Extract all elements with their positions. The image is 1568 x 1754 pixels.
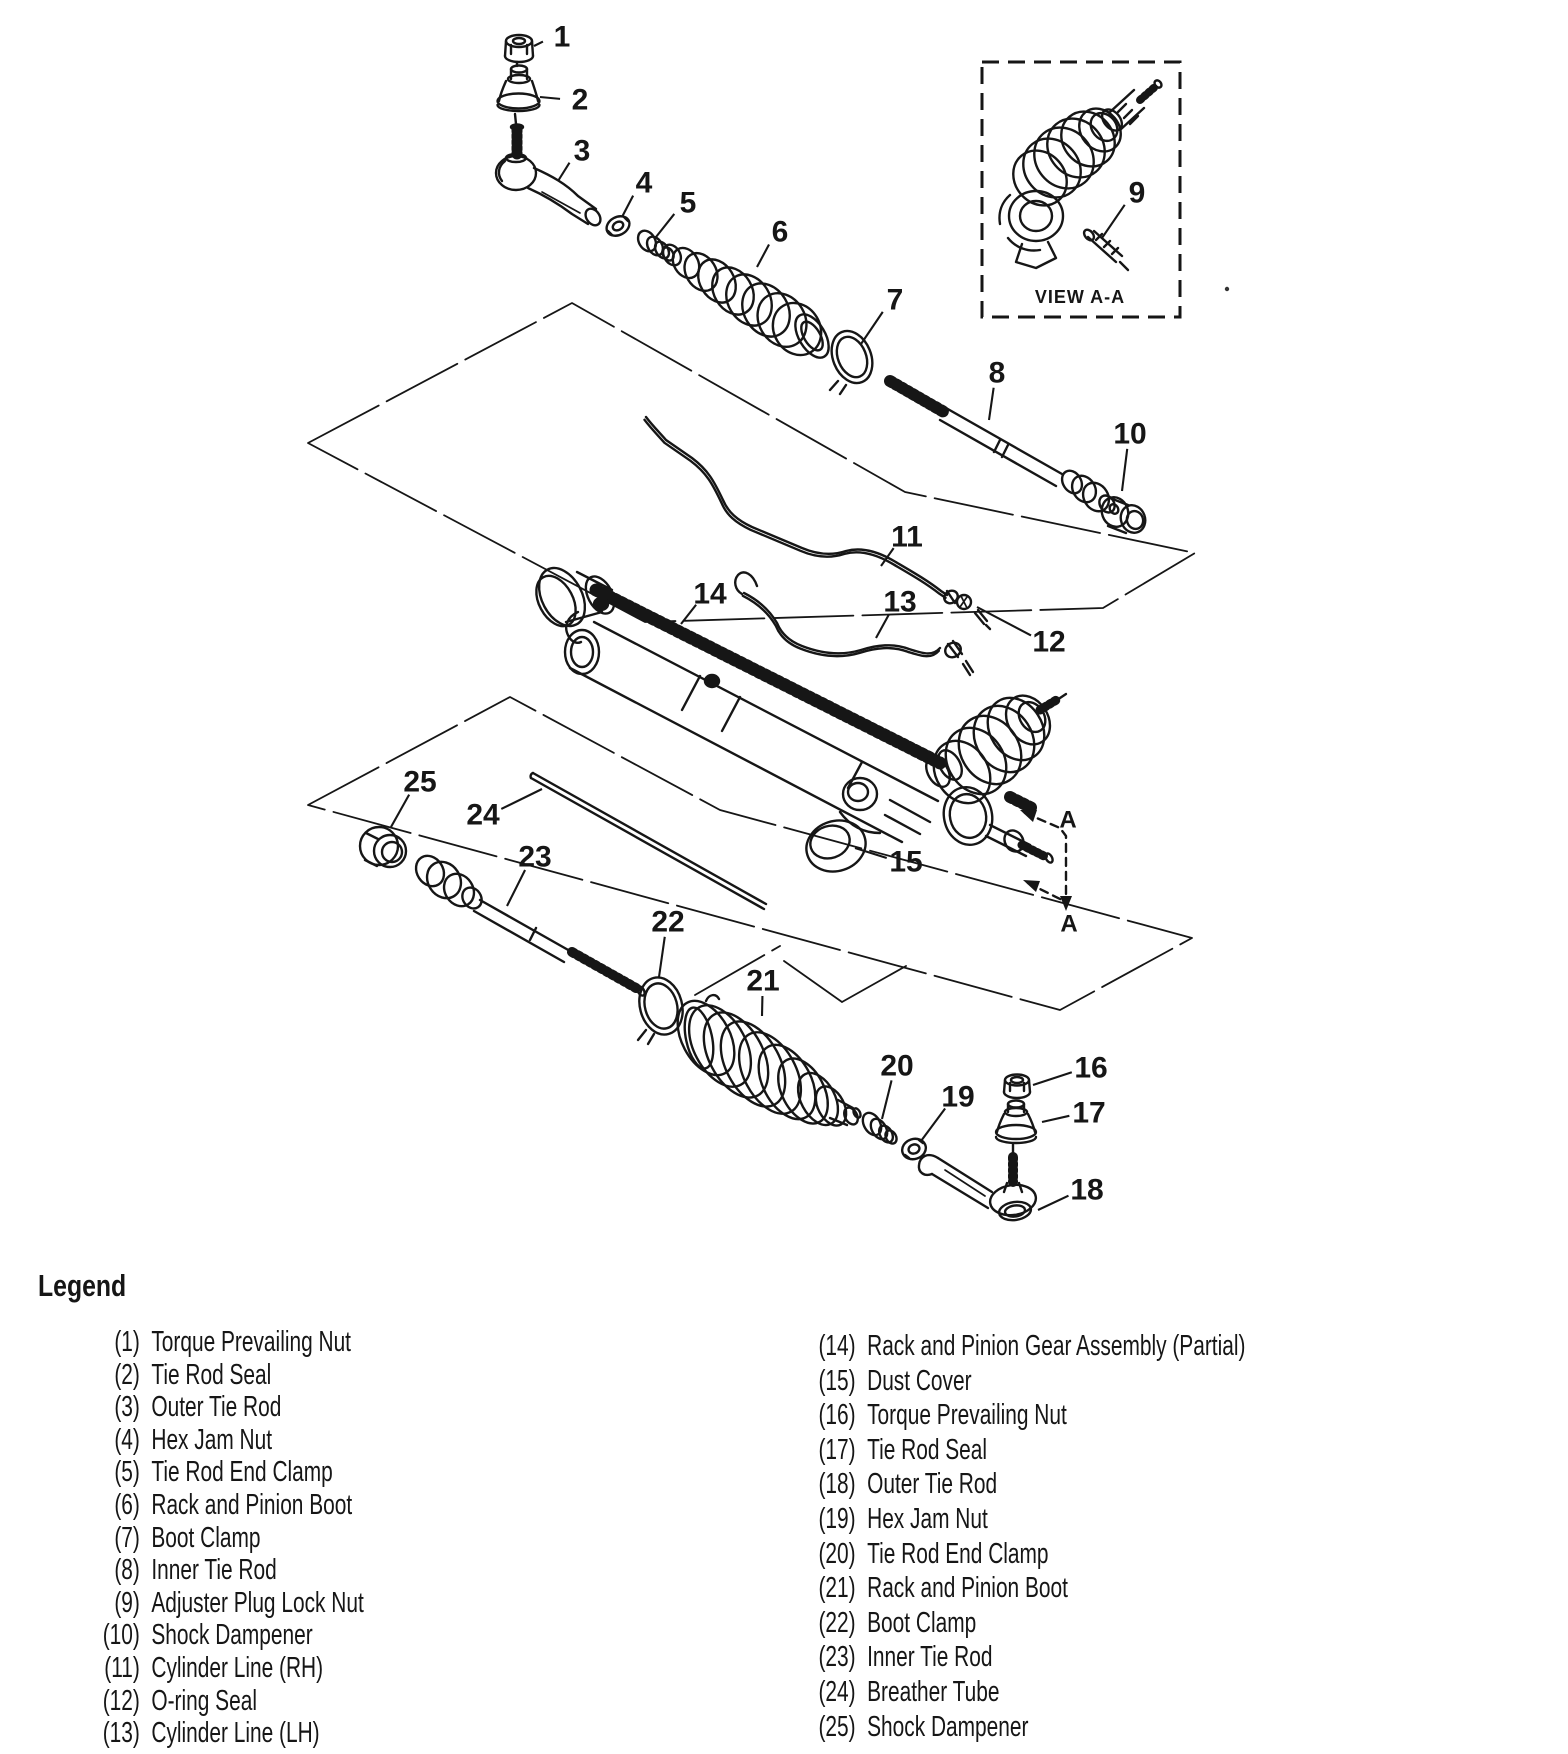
legend-item-number: (18) [798, 1468, 856, 1501]
callout-label-17: 17 [1072, 1097, 1105, 1130]
callout-leader-9 [1102, 205, 1125, 238]
exploded-parts-diagram: VIEW A-A [0, 0, 1568, 1250]
callout-1: 1 [534, 21, 570, 54]
callout-label-11: 11 [891, 521, 923, 554]
legend-item-number: (1) [70, 1326, 140, 1359]
callout-5: 5 [656, 187, 696, 238]
legend-item-label: Tie Rod Seal [151, 1359, 271, 1392]
legend-item: (5)Tie Rod End Clamp [70, 1456, 364, 1489]
legend-item: (6)Rack and Pinion Boot [70, 1489, 364, 1522]
construction-plane-lower [308, 697, 1192, 1010]
callout-label-1: 1 [554, 21, 571, 54]
callout-25: 25 [391, 766, 437, 828]
callout-label-21: 21 [746, 965, 779, 998]
callout-24: 24 [466, 789, 542, 832]
callout-11: 11 [881, 521, 923, 567]
part-4-hex-jam-nut [603, 212, 633, 239]
callout-leader-17 [1042, 1116, 1069, 1122]
legend-item-label: Rack and Pinion Boot [867, 1572, 1068, 1605]
callout-label-4: 4 [636, 167, 653, 200]
callout-label-14: 14 [693, 578, 727, 611]
legend-item-number: (24) [798, 1676, 856, 1709]
legend-item-number: (10) [70, 1619, 140, 1652]
part-10-shock-dampener [1098, 493, 1149, 536]
callout-leader-1 [534, 42, 543, 46]
part-25-shock-dampener [360, 827, 406, 867]
legend-item-label: Outer Tie Rod [867, 1468, 997, 1501]
legend-item: (13)Cylinder Line (LH) [70, 1717, 364, 1750]
callout-leader-7 [861, 312, 883, 344]
callout-14: 14 [681, 578, 727, 625]
legend-item-number: (23) [798, 1641, 856, 1674]
callout-leader-20 [882, 1080, 892, 1119]
callout-leader-10 [1122, 449, 1127, 491]
legend-item: (22)Boot Clamp [798, 1607, 1245, 1642]
legend-item: (20)Tie Rod End Clamp [798, 1538, 1245, 1573]
legend-item: (2)Tie Rod Seal [70, 1359, 364, 1392]
callout-leader-8 [989, 388, 994, 420]
callout-13: 13 [876, 586, 917, 639]
scan-speck [1225, 287, 1229, 291]
legend-item-number: (15) [798, 1365, 856, 1398]
legend-item: (3)Outer Tie Rod [70, 1391, 364, 1424]
legend-item: (12)O-ring Seal [70, 1685, 364, 1718]
legend-item-label: Breather Tube [867, 1676, 999, 1709]
legend-item-label: Hex Jam Nut [151, 1424, 272, 1457]
legend-item: (10)Shock Dampener [70, 1619, 364, 1652]
legend-item: (11)Cylinder Line (RH) [70, 1652, 364, 1685]
callout-label-24: 24 [466, 799, 500, 832]
legend-item-number: (7) [70, 1522, 140, 1555]
part-19-hex-jam-nut [899, 1136, 928, 1162]
legend-item: (18)Outer Tie Rod [798, 1468, 1245, 1503]
legend-item-label: Tie Rod End Clamp [151, 1456, 332, 1489]
legend-column-right: (14)Rack and Pinion Gear Assembly (Parti… [798, 1330, 1245, 1745]
callout-16: 16 [1033, 1052, 1108, 1086]
part-14-rack-and-pinion-gear-assembly [528, 560, 1066, 864]
callout-label-12: 12 [1032, 626, 1065, 659]
legend-item-number: (6) [70, 1489, 140, 1522]
legend-item: (19)Hex Jam Nut [798, 1503, 1245, 1538]
callout-leader-24 [501, 789, 542, 809]
callout-leader-16 [1033, 1072, 1072, 1085]
legend-item-label: Shock Dampener [151, 1619, 312, 1652]
legend-item-number: (20) [798, 1538, 856, 1571]
adjuster-plug-drawing [999, 79, 1162, 268]
legend-item-label: Rack and Pinion Gear Assembly (Partial) [867, 1330, 1245, 1363]
legend-item-number: (4) [70, 1424, 140, 1457]
legend-item: (15)Dust Cover [798, 1365, 1245, 1400]
legend-item-label: Inner Tie Rod [151, 1554, 276, 1587]
legend-item: (1)Torque Prevailing Nut [70, 1326, 364, 1359]
legend-item: (24)Breather Tube [798, 1676, 1245, 1711]
legend-item-number: (21) [798, 1572, 856, 1605]
view-a-a-border [982, 62, 1180, 317]
callout-label-16: 16 [1074, 1052, 1107, 1085]
part-18-outer-tie-rod [919, 1144, 1038, 1222]
callout-label-23: 23 [518, 841, 551, 874]
part-17-tie-rod-seal [996, 1101, 1036, 1144]
legend-item-label: Tie Rod End Clamp [867, 1538, 1048, 1571]
part-1-torque-prevailing-nut [505, 35, 533, 66]
legend-item-number: (19) [798, 1503, 856, 1536]
legend-item-number: (12) [70, 1685, 140, 1718]
part-16-torque-prevailing-nut [1004, 1075, 1030, 1099]
part-20-tie-rod-end-clamp [859, 1110, 899, 1146]
legend-item-label: Cylinder Line (RH) [151, 1652, 323, 1685]
callout-9: 9 [1102, 177, 1145, 239]
callout-label-5: 5 [680, 187, 697, 220]
callout-label-9: 9 [1129, 177, 1146, 210]
view-a-a-inset: VIEW A-A [982, 62, 1180, 317]
section-a-a-arrows: A A [1020, 807, 1078, 938]
part-6-rack-and-pinion-boot [659, 241, 835, 364]
callout-label-15: 15 [889, 846, 922, 879]
legend-item-number: (14) [798, 1330, 856, 1363]
legend-column-left: (1)Torque Prevailing Nut(2)Tie Rod Seal(… [70, 1326, 364, 1750]
callout-2: 2 [540, 84, 588, 117]
legend-item-number: (16) [798, 1399, 856, 1432]
legend-item: (14)Rack and Pinion Gear Assembly (Parti… [798, 1330, 1245, 1365]
arrowhead-upper [1020, 810, 1037, 822]
arrowhead-lower [1023, 880, 1040, 892]
callout-label-7: 7 [887, 284, 904, 317]
legend-item-number: (13) [70, 1717, 140, 1750]
legend-item-label: Torque Prevailing Nut [867, 1399, 1067, 1432]
legend-item-number: (5) [70, 1456, 140, 1489]
callout-leader-4 [622, 196, 633, 217]
legend-item-label: Tie Rod Seal [867, 1434, 987, 1467]
callout-20: 20 [880, 1050, 913, 1120]
legend-item-label: Cylinder Line (LH) [151, 1717, 319, 1750]
construction-plane-upper [308, 303, 1195, 622]
callout-leader-2 [540, 97, 560, 99]
callout-15: 15 [855, 846, 923, 879]
callout-8: 8 [989, 357, 1006, 421]
legend-item-number: (11) [70, 1652, 140, 1685]
legend-item-label: Adjuster Plug Lock Nut [151, 1587, 363, 1620]
part-24-breather-tube [531, 773, 766, 909]
callout-23: 23 [507, 841, 552, 907]
callout-4: 4 [622, 167, 653, 218]
legend-item: (16)Torque Prevailing Nut [798, 1399, 1245, 1434]
callout-leader-5 [656, 214, 674, 237]
legend-item-label: Hex Jam Nut [867, 1503, 988, 1536]
callout-leader-6 [757, 245, 769, 267]
legend-item-label: Dust Cover [867, 1365, 971, 1398]
legend-item-label: Shock Dampener [867, 1711, 1028, 1744]
legend-item: (4)Hex Jam Nut [70, 1424, 364, 1457]
callout-leader-22 [659, 937, 665, 977]
callout-label-20: 20 [880, 1050, 913, 1083]
callout-17: 17 [1042, 1097, 1106, 1130]
legend-item-label: Inner Tie Rod [867, 1641, 992, 1674]
legend-item-number: (3) [70, 1391, 140, 1424]
callout-label-6: 6 [772, 216, 789, 249]
section-label-a-top: A [1059, 807, 1076, 834]
legend-item: (7)Boot Clamp [70, 1522, 364, 1555]
callout-leader-18 [1038, 1196, 1068, 1210]
callout-6: 6 [757, 216, 788, 268]
callout-leader-23 [507, 870, 525, 906]
callout-leader-25 [391, 795, 409, 827]
legend-item: (25)Shock Dampener [798, 1711, 1245, 1746]
legend-item: (21)Rack and Pinion Boot [798, 1572, 1245, 1607]
callout-label-3: 3 [574, 135, 591, 168]
legend-item: (17)Tie Rod Seal [798, 1434, 1245, 1469]
part-2-tie-rod-seal [498, 66, 540, 125]
callout-10: 10 [1113, 418, 1146, 492]
view-a-a-label: VIEW A-A [1035, 287, 1125, 307]
legend-item-number: (22) [798, 1607, 856, 1640]
legend-item-label: Boot Clamp [867, 1607, 976, 1640]
steering-gear-parts-page: VIEW A-A [0, 0, 1568, 1754]
legend-title: Legend [38, 1268, 126, 1304]
callout-label-18: 18 [1070, 1174, 1103, 1207]
callout-18: 18 [1038, 1174, 1104, 1211]
legend-item-number: (2) [70, 1359, 140, 1392]
part-11-cylinder-line-rh [645, 417, 961, 606]
legend-item-number: (17) [798, 1434, 856, 1467]
callout-12: 12 [977, 607, 1066, 659]
callout-leader-3 [558, 163, 570, 181]
legend-item-label: Rack and Pinion Boot [151, 1489, 352, 1522]
callout-19: 19 [921, 1081, 975, 1142]
legend-item: (8)Inner Tie Rod [70, 1554, 364, 1587]
legend-item-label: Torque Prevailing Nut [151, 1326, 351, 1359]
part-15-dust-cover [800, 813, 873, 879]
legend-item-label: Outer Tie Rod [151, 1391, 281, 1424]
legend-item: (9)Adjuster Plug Lock Nut [70, 1587, 364, 1620]
callout-7: 7 [861, 284, 903, 345]
legend-item-label: Boot Clamp [151, 1522, 260, 1555]
part-21-rack-and-pinion-boot [666, 991, 862, 1131]
callout-label-19: 19 [941, 1081, 974, 1114]
legend-item-number: (25) [798, 1711, 856, 1744]
callout-label-13: 13 [883, 586, 916, 619]
section-label-a-bottom: A [1060, 911, 1077, 938]
callout-3: 3 [558, 135, 590, 182]
part-7-boot-clamp [824, 325, 879, 394]
legend-item-label: O-ring Seal [151, 1685, 257, 1718]
callout-label-8: 8 [989, 357, 1006, 390]
legend-item: (23)Inner Tie Rod [798, 1641, 1245, 1676]
callout-label-22: 22 [651, 906, 684, 939]
legend-item-number: (9) [70, 1587, 140, 1620]
callout-21: 21 [746, 965, 779, 1017]
legend-item-number: (8) [70, 1554, 140, 1587]
callout-label-25: 25 [403, 766, 436, 799]
callout-label-10: 10 [1113, 418, 1146, 451]
callout-22: 22 [651, 906, 684, 978]
callout-label-2: 2 [572, 84, 589, 117]
